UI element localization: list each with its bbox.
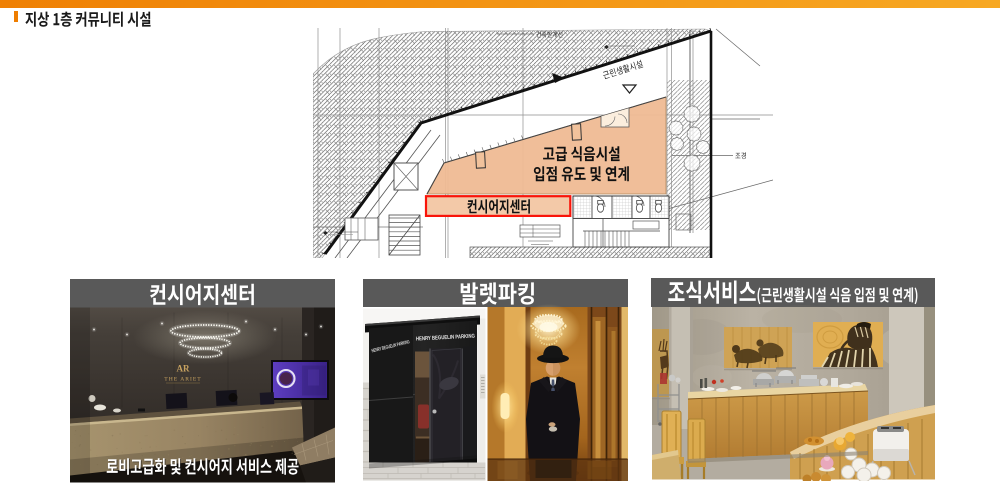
svg-text:THE ARIET: THE ARIET bbox=[164, 376, 201, 382]
svg-text:AR: AR bbox=[177, 363, 190, 373]
